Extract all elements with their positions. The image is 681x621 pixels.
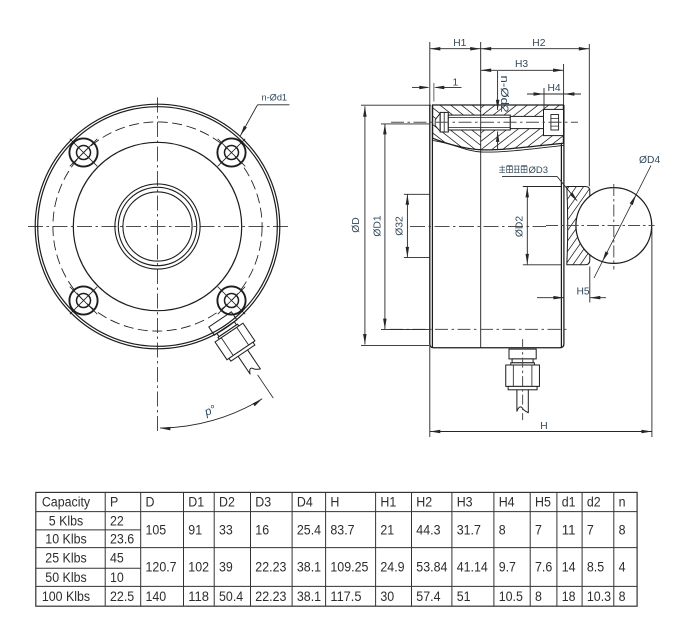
svg-text:8: 8 xyxy=(535,589,542,604)
svg-text:n: n xyxy=(619,495,626,510)
svg-text:H1: H1 xyxy=(380,495,396,510)
svg-text:ØD3: ØD3 xyxy=(529,165,549,176)
svg-text:11: 11 xyxy=(562,522,576,537)
svg-text:39: 39 xyxy=(219,560,233,575)
svg-text:22.5: 22.5 xyxy=(110,589,134,604)
svg-text:117.5: 117.5 xyxy=(330,589,361,604)
svg-text:18: 18 xyxy=(562,589,576,604)
svg-text:50.4: 50.4 xyxy=(219,589,244,604)
svg-text:25.4: 25.4 xyxy=(297,522,322,537)
svg-text:H4: H4 xyxy=(548,83,561,94)
svg-text:4: 4 xyxy=(619,560,626,575)
svg-text:ØD4: ØD4 xyxy=(639,155,660,166)
svg-text:10.5: 10.5 xyxy=(499,589,523,604)
svg-text:50 Klbs: 50 Klbs xyxy=(45,570,87,585)
svg-text:118: 118 xyxy=(188,589,209,604)
svg-text:57.4: 57.4 xyxy=(416,589,441,604)
svg-text:33: 33 xyxy=(219,522,233,537)
svg-text:D4: D4 xyxy=(297,495,313,510)
svg-text:d2: d2 xyxy=(587,495,601,510)
svg-text:8: 8 xyxy=(619,522,626,537)
svg-text:8.5: 8.5 xyxy=(587,560,604,575)
svg-text:D3: D3 xyxy=(255,495,271,510)
svg-text:8: 8 xyxy=(499,522,506,537)
svg-text:9.7: 9.7 xyxy=(499,560,516,575)
svg-text:D: D xyxy=(146,495,155,510)
svg-text:53.84: 53.84 xyxy=(416,560,448,575)
svg-text:24.9: 24.9 xyxy=(380,560,404,575)
svg-text:22: 22 xyxy=(110,514,124,529)
svg-text:ØD: ØD xyxy=(351,217,362,232)
svg-text:Capacity: Capacity xyxy=(42,495,91,510)
svg-text:38.1: 38.1 xyxy=(297,589,321,604)
svg-text:5 Klbs: 5 Klbs xyxy=(49,514,84,529)
svg-text:H: H xyxy=(540,421,547,432)
svg-text:H3: H3 xyxy=(515,59,528,70)
svg-text:16: 16 xyxy=(255,522,269,537)
svg-text:10 Klbs: 10 Klbs xyxy=(45,532,87,547)
svg-text:H3: H3 xyxy=(457,495,473,510)
svg-text:ØD1: ØD1 xyxy=(372,215,383,236)
svg-text:105: 105 xyxy=(146,522,167,537)
svg-text:22.23: 22.23 xyxy=(255,589,286,604)
svg-text:120.7: 120.7 xyxy=(146,560,177,575)
svg-text:1: 1 xyxy=(453,77,459,88)
svg-text:38.1: 38.1 xyxy=(297,560,321,575)
svg-text:45: 45 xyxy=(110,551,124,566)
svg-text:7: 7 xyxy=(535,522,542,537)
svg-text:140: 140 xyxy=(146,589,167,604)
svg-text:91: 91 xyxy=(188,522,202,537)
svg-text:D1: D1 xyxy=(188,495,204,510)
svg-text:31.7: 31.7 xyxy=(457,522,481,537)
svg-text:H4: H4 xyxy=(499,495,515,510)
svg-text:41.14: 41.14 xyxy=(457,560,489,575)
svg-text:H1: H1 xyxy=(453,38,466,49)
svg-text:n-Ød2: n-Ød2 xyxy=(498,76,510,113)
svg-text:H5: H5 xyxy=(577,287,590,298)
svg-text:21: 21 xyxy=(380,522,394,537)
svg-text:H2: H2 xyxy=(532,38,545,49)
svg-text:d1: d1 xyxy=(562,495,576,510)
svg-text:14: 14 xyxy=(562,560,576,575)
svg-text:109.25: 109.25 xyxy=(330,560,368,575)
svg-text:23.6: 23.6 xyxy=(110,532,134,547)
svg-text:100 Klbs: 100 Klbs xyxy=(42,589,91,604)
svg-text:8: 8 xyxy=(619,589,626,604)
svg-text:44.3: 44.3 xyxy=(416,522,440,537)
svg-text:Ø32: Ø32 xyxy=(395,216,406,236)
svg-text:ØD2: ØD2 xyxy=(514,216,525,237)
svg-text:H5: H5 xyxy=(535,495,551,510)
svg-text:10: 10 xyxy=(110,570,124,585)
svg-text:25 Klbs: 25 Klbs xyxy=(45,551,87,566)
svg-text:n-Ød1: n-Ød1 xyxy=(262,93,288,103)
svg-text:51: 51 xyxy=(457,589,471,604)
svg-text:H2: H2 xyxy=(416,495,432,510)
svg-text:P: P xyxy=(110,495,118,510)
svg-text:22.23: 22.23 xyxy=(255,560,286,575)
svg-text:7.6: 7.6 xyxy=(535,560,552,575)
svg-text:30: 30 xyxy=(380,589,394,604)
svg-text:D2: D2 xyxy=(219,495,235,510)
svg-text:102: 102 xyxy=(188,560,209,575)
svg-text:10.3: 10.3 xyxy=(587,589,611,604)
svg-text:H: H xyxy=(330,495,339,510)
svg-text:7: 7 xyxy=(587,522,594,537)
svg-text:83.7: 83.7 xyxy=(330,522,354,537)
